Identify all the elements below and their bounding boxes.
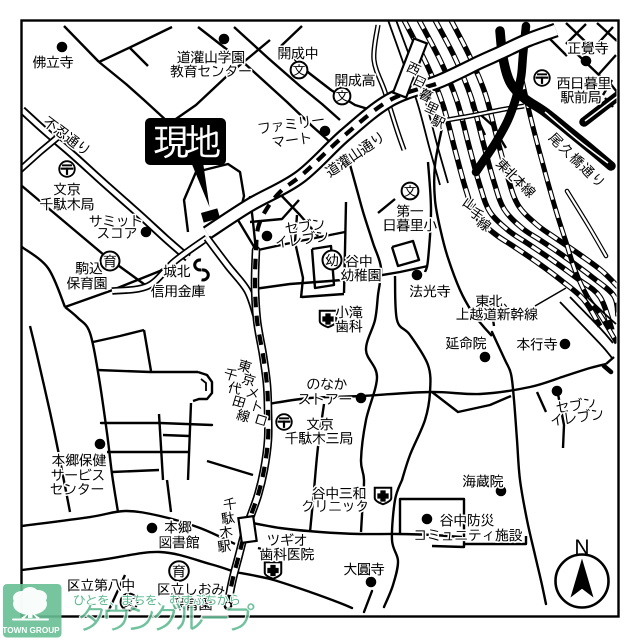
svg-text:TOWN GROUP: TOWN GROUP xyxy=(2,626,60,635)
